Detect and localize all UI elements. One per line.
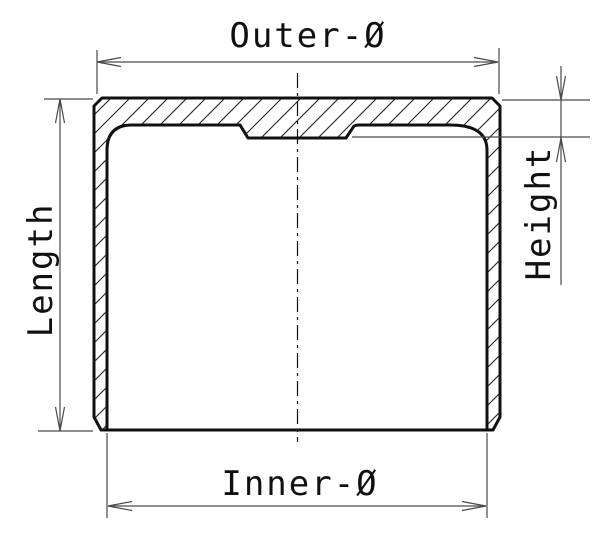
technical-drawing: Outer-Ø Inner-Ø Length Height [0, 0, 600, 553]
drawing-canvas: Outer-Ø Inner-Ø Length Height [0, 0, 600, 553]
height-label: Height [519, 146, 559, 281]
outer-diameter-label: Outer-Ø [229, 16, 386, 56]
length-label: Length [21, 203, 61, 338]
inner-diameter-label: Inner-Ø [221, 464, 378, 504]
